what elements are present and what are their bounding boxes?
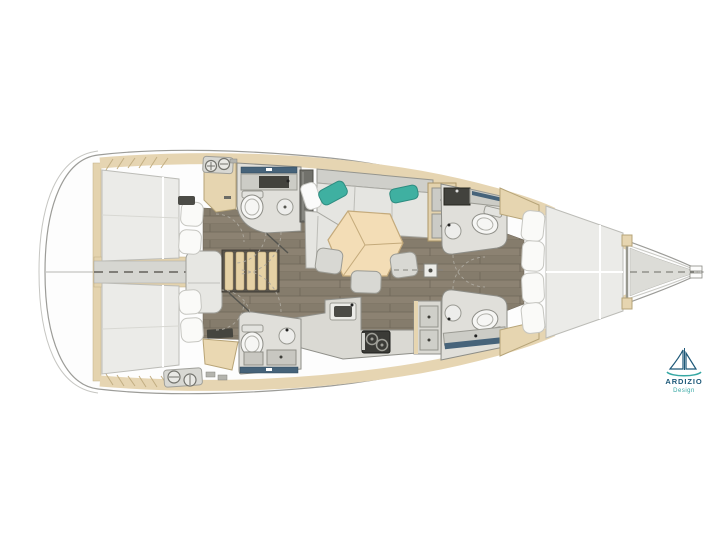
nav-station (203, 328, 238, 370)
engine-compartment (94, 257, 192, 287)
fridge-drawers (414, 301, 441, 354)
shower-seat (244, 352, 263, 365)
aft-locker-port (178, 196, 195, 205)
stool-right (389, 251, 418, 278)
logo-brand-text: ARDIZIO (665, 377, 702, 386)
sink-icon (445, 223, 461, 239)
toilet-tank (242, 325, 263, 332)
yacht-floor-plan-page: ARDIZIO Design (0, 0, 720, 540)
vanity-sink (259, 176, 289, 188)
deck-winches-top (203, 156, 237, 174)
stove-icon (362, 331, 390, 353)
yacht-floor-plan-drawing: ARDIZIO Design (0, 0, 720, 540)
sailboat-icon (667, 348, 701, 376)
stool-left (314, 247, 343, 274)
sink-icon (445, 305, 461, 321)
designer-logo: ARDIZIO Design (665, 348, 702, 394)
stool-bottom (351, 270, 382, 293)
logo-subtitle-text: Design (673, 388, 695, 394)
companionway-stairs (222, 250, 279, 292)
